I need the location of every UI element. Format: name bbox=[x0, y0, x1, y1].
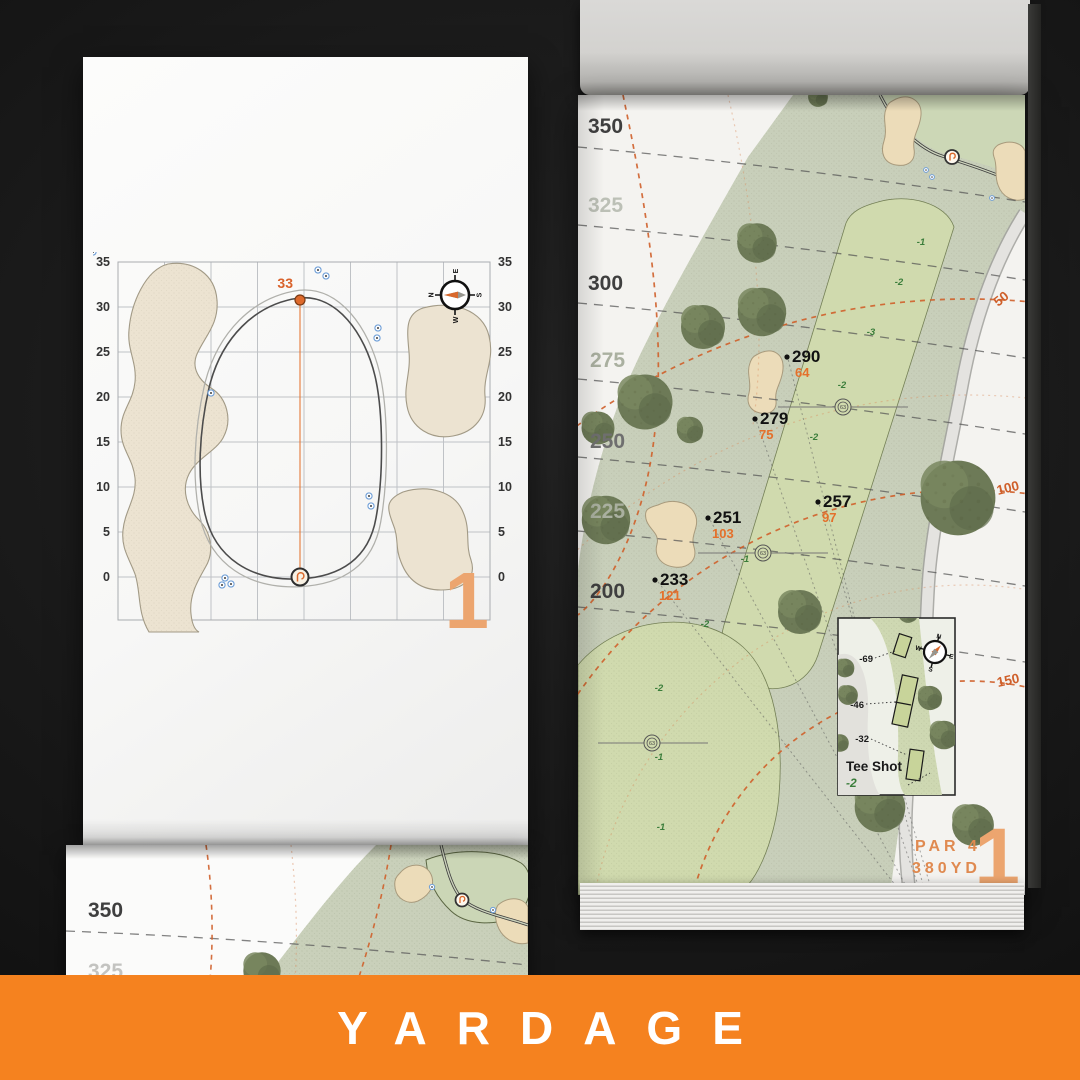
svg-text:63: 63 bbox=[760, 551, 766, 557]
flag-marker bbox=[945, 150, 959, 164]
pin-depth-label: 33 bbox=[277, 275, 293, 291]
tee-inset-elevation: -2 bbox=[846, 776, 857, 790]
pin-dot bbox=[295, 295, 305, 305]
svg-text:15: 15 bbox=[96, 435, 110, 449]
next-page-peek: 350 325 bbox=[66, 845, 528, 980]
svg-text:25: 25 bbox=[96, 345, 110, 359]
svg-text:64: 64 bbox=[795, 365, 810, 380]
svg-text:20: 20 bbox=[96, 390, 110, 404]
svg-text:279: 279 bbox=[760, 409, 788, 428]
svg-text:121: 121 bbox=[659, 588, 681, 603]
svg-text:20: 20 bbox=[498, 390, 512, 404]
next-page-map: 350 325 bbox=[66, 845, 528, 980]
green-map: 33 35 30 25 20 15 10 5 0 35 30 25 20 15 bbox=[93, 252, 518, 642]
hole-map: 63 63 63 -1 -2 bbox=[578, 95, 1025, 895]
page-left-shadow bbox=[578, 95, 604, 895]
under-page-shadow bbox=[66, 845, 528, 859]
banner-title: YARDAGE bbox=[307, 1001, 773, 1055]
svg-text:0: 0 bbox=[103, 570, 110, 584]
svg-text:-2: -2 bbox=[701, 619, 710, 630]
svg-text:290: 290 bbox=[792, 347, 820, 366]
svg-text:257: 257 bbox=[823, 492, 851, 511]
svg-text:75: 75 bbox=[759, 427, 773, 442]
svg-text:-2: -2 bbox=[655, 683, 664, 694]
svg-text:N: N bbox=[429, 292, 436, 297]
svg-text:W: W bbox=[453, 316, 460, 323]
yardage-book-mockup: 33 35 30 25 20 15 10 5 0 35 30 25 20 15 bbox=[0, 0, 1080, 1080]
svg-text:30: 30 bbox=[498, 300, 512, 314]
svg-text:10: 10 bbox=[498, 480, 512, 494]
svg-text:-3: -3 bbox=[867, 327, 876, 338]
svg-text:-69: -69 bbox=[859, 654, 873, 665]
svg-text:150: 150 bbox=[996, 671, 1021, 690]
svg-text:63: 63 bbox=[840, 405, 846, 411]
yardage-label: 350 bbox=[88, 899, 123, 922]
par-label: PAR 4 bbox=[915, 838, 981, 855]
svg-text:0: 0 bbox=[498, 570, 505, 584]
page-top-shadow bbox=[578, 95, 1025, 111]
axis-labels-left: 35 30 25 20 15 10 5 0 bbox=[96, 255, 110, 584]
svg-text:-1: -1 bbox=[655, 752, 663, 763]
page-curl-shadow bbox=[83, 819, 528, 845]
svg-text:97: 97 bbox=[822, 510, 836, 525]
svg-text:10: 10 bbox=[96, 480, 110, 494]
axis-labels-right: 35 30 25 20 15 10 5 0 bbox=[498, 255, 512, 584]
folded-page-curl bbox=[580, 0, 1030, 95]
tee-shot-inset: -69 -46 -32 bbox=[831, 603, 959, 795]
svg-text:63: 63 bbox=[649, 741, 655, 747]
page-stack-edge bbox=[580, 883, 1024, 930]
svg-text:5: 5 bbox=[498, 525, 505, 539]
svg-text:35: 35 bbox=[96, 255, 110, 269]
arc-labels: 50 100 150 bbox=[991, 288, 1021, 690]
svg-text:-2: -2 bbox=[838, 380, 847, 391]
svg-text:-1: -1 bbox=[657, 822, 665, 833]
svg-text:15: 15 bbox=[498, 435, 512, 449]
front-marker bbox=[292, 569, 309, 586]
svg-text:35: 35 bbox=[498, 255, 512, 269]
booklet-side-edge bbox=[1028, 4, 1041, 888]
putting-green-outline bbox=[195, 290, 386, 587]
hole-number: 1 bbox=[445, 556, 490, 642]
svg-text:5: 5 bbox=[103, 525, 110, 539]
svg-text:-1: -1 bbox=[917, 237, 925, 248]
svg-text:25: 25 bbox=[498, 345, 512, 359]
tee-inset-title: Tee Shot bbox=[846, 759, 903, 774]
hole-map-page: 63 63 63 -1 -2 bbox=[578, 95, 1025, 895]
svg-text:30: 30 bbox=[96, 300, 110, 314]
svg-text:-2: -2 bbox=[810, 432, 819, 443]
flag-marker bbox=[456, 894, 469, 907]
svg-text:-32: -32 bbox=[855, 734, 869, 745]
yardage-total-label: 380YD bbox=[912, 860, 981, 877]
svg-text:100: 100 bbox=[995, 478, 1020, 498]
green-map-page: 33 35 30 25 20 15 10 5 0 35 30 25 20 15 bbox=[83, 57, 528, 845]
yardage-banner: YARDAGE bbox=[0, 975, 1080, 1080]
svg-text:-2: -2 bbox=[895, 277, 904, 288]
svg-text:251: 251 bbox=[713, 508, 741, 527]
svg-text:-1: -1 bbox=[741, 554, 749, 565]
svg-text:E: E bbox=[453, 268, 460, 273]
svg-text:233: 233 bbox=[660, 570, 688, 589]
svg-text:-46: -46 bbox=[850, 700, 864, 711]
svg-text:103: 103 bbox=[712, 526, 734, 541]
svg-text:S: S bbox=[477, 292, 484, 297]
